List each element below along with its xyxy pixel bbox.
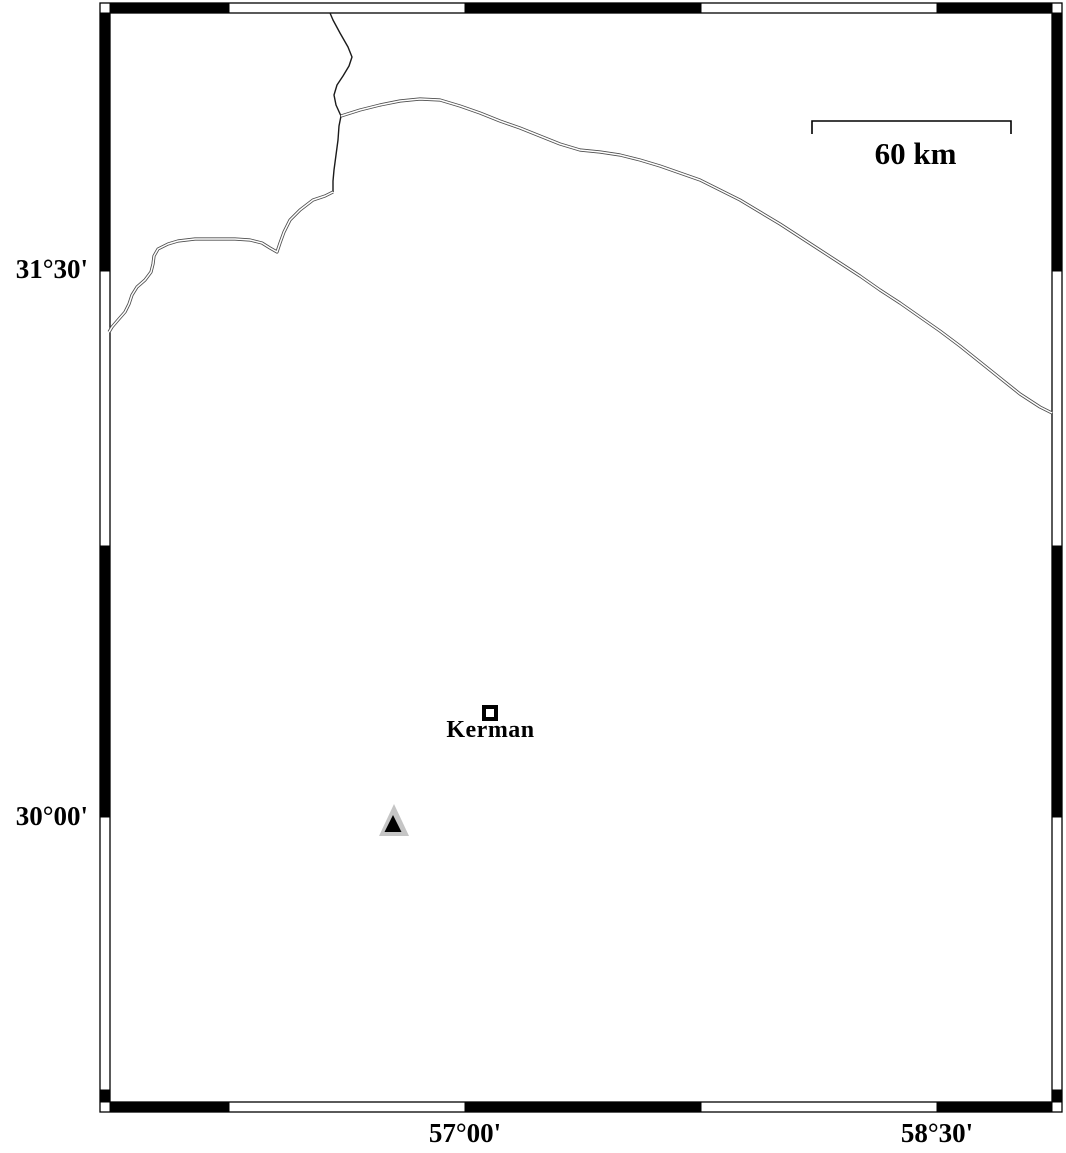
frame-segment-left [100,817,110,1090]
frame-segment-top [110,3,229,13]
frame-segment-left [100,546,110,817]
frame-segment-right [1052,1090,1062,1102]
frame-segment-top [701,3,937,13]
frame-segment-top [937,3,1052,13]
boundary_north-line [330,13,352,192]
frame-segment-bottom [937,1102,1052,1112]
latitude-label-31-30: 31°30' [0,254,88,285]
frame-segment-right [1052,271,1062,546]
frame-segment-right [1052,817,1062,1090]
frame-segment-left [100,271,110,546]
latitude-label-30-00: 30°00' [0,801,88,832]
frame-segment-right [1052,13,1062,271]
frame-segment-left [100,13,110,271]
frame-segment-bottom [465,1102,701,1112]
scale-bar [812,121,1011,134]
map-canvas: 31°30' 30°00' 57°00' 58°30' 60 km Kerman [0,0,1066,1153]
frame-segment-bottom [701,1102,937,1112]
scale-bar-label: 60 km [828,136,1003,172]
city-label-kerman: Kerman [418,717,563,744]
frame-segment-left [100,1090,110,1102]
frame-segment-right [1052,546,1062,817]
longitude-label-57-00: 57°00' [380,1118,550,1149]
frame-segment-top [229,3,465,13]
longitude-label-58-30: 58°30' [852,1118,1022,1149]
frame-segment-top [465,3,701,13]
frame-segment-bottom [110,1102,229,1112]
map-figure [0,0,1066,1153]
boundary_west-line-gap [109,192,333,332]
boundary_west-line [109,192,333,332]
frame-inner-line [110,13,1052,1102]
frame-segment-bottom [229,1102,465,1112]
